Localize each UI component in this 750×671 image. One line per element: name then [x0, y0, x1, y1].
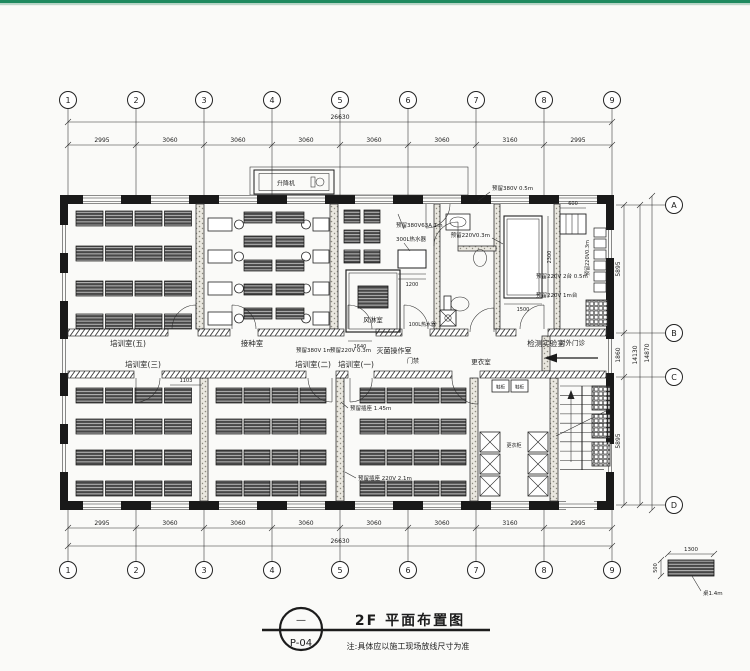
- drawing-title: 2F 平面布置图: [355, 612, 465, 629]
- dim-seg-bottom: 3060: [434, 520, 449, 527]
- desk: [387, 388, 412, 403]
- work-table: [276, 212, 304, 223]
- window-bottom: [559, 502, 597, 510]
- corridor-wall-top: [198, 329, 230, 336]
- electrical-panel: [586, 300, 608, 326]
- dim-seg-bottom: 3060: [230, 520, 245, 527]
- desk: [360, 419, 385, 434]
- label-room-r3: 培训室(三): [125, 359, 161, 369]
- desk: [360, 388, 385, 403]
- air-shower-unit: [358, 286, 388, 308]
- desk: [165, 246, 192, 261]
- window-top: [423, 196, 461, 204]
- electrical-box: [594, 250, 606, 259]
- window-top: [83, 196, 121, 204]
- grid-label-bottom: 5: [337, 566, 342, 575]
- rack: [364, 250, 380, 263]
- desk: [216, 481, 242, 496]
- electrical-box: [594, 283, 606, 292]
- label-room-r1: 培训室(一): [338, 359, 374, 369]
- desk: [76, 419, 103, 434]
- desk: [76, 211, 103, 226]
- bench: [313, 312, 329, 325]
- window-bottom: [355, 502, 393, 510]
- dim-seg-bottom: 3060: [162, 520, 177, 527]
- desk: [106, 314, 133, 329]
- corridor-wall-top: [496, 329, 516, 336]
- work-table: [244, 260, 272, 271]
- note-220v-1m: 预留220V 1m台: [536, 291, 578, 299]
- desk: [165, 211, 192, 226]
- window-bottom: [151, 502, 189, 510]
- grid-label-row: C: [671, 373, 677, 382]
- desk: [135, 281, 162, 296]
- window-top: [559, 196, 597, 204]
- label-air-shower: 风淋室: [363, 315, 383, 324]
- dim-seg-top: 3060: [230, 137, 245, 144]
- desk: [165, 450, 192, 465]
- stool: [235, 220, 244, 229]
- dim-seg-bottom: 2995: [570, 520, 585, 527]
- grid-label-row: D: [671, 501, 677, 510]
- grid-label-top: 2: [133, 96, 138, 105]
- exit-west: [60, 339, 68, 373]
- desk: [135, 388, 162, 403]
- stool: [235, 252, 244, 261]
- desk: [441, 388, 466, 403]
- note-380v-63a: 预留380V63A 1m: [396, 221, 443, 229]
- grid-label-top: 7: [473, 96, 478, 105]
- note-220v-03c: 预留220V 0.3m: [330, 346, 371, 354]
- rack: [344, 210, 360, 223]
- desk: [414, 388, 439, 403]
- stool: [235, 314, 244, 323]
- desk: [414, 450, 439, 465]
- label-room-locker: 更衣室: [471, 357, 491, 366]
- legend-label: 桌1.4m: [703, 589, 723, 597]
- note-220v-03a: 预留220V0.3m: [451, 231, 490, 239]
- electrical-panel: [592, 414, 610, 438]
- label-room-r2: 培训室(二): [295, 359, 331, 369]
- note-220v-03b: 预留220V0.3m: [584, 240, 591, 276]
- desk: [76, 314, 103, 329]
- work-table: [244, 308, 272, 319]
- work-table: [276, 236, 304, 247]
- label-room-clinic: 对外门诊: [559, 338, 586, 347]
- desk: [300, 481, 326, 496]
- note-socket-21: 预留插座 220V 2.1m: [358, 474, 412, 482]
- corridor-wall-top: [430, 329, 468, 336]
- legend-height: 500: [653, 563, 659, 573]
- desk: [135, 481, 162, 496]
- corridor-wall-bottom: [480, 371, 606, 378]
- label-shoe-cabinet-1: 鞋柜: [496, 384, 505, 391]
- sheet-revision: —: [296, 615, 306, 626]
- label-room-sterilization: 灭菌操作室: [377, 346, 412, 355]
- desk: [165, 281, 192, 296]
- work-table: [244, 284, 272, 295]
- dim-total-row-outer: 14870: [644, 343, 651, 362]
- corridor-wall-top: [258, 329, 344, 336]
- dim-1103: 1103: [180, 378, 193, 384]
- label-shoe-cabinet-2: 鞋柜: [515, 384, 524, 391]
- work-table: [276, 260, 304, 271]
- work-table: [398, 250, 426, 268]
- electrical-panel: [592, 386, 610, 410]
- desk: [165, 388, 192, 403]
- dim-seg-top: 3060: [162, 137, 177, 144]
- dim-seg-top: 3160: [502, 137, 517, 144]
- desk: [414, 419, 439, 434]
- desk: [106, 388, 133, 403]
- desk: [387, 450, 412, 465]
- dim-total-bottom: 26630: [330, 538, 349, 545]
- corridor-wall-bottom: [162, 371, 306, 378]
- desk: [387, 419, 412, 434]
- desk: [272, 481, 298, 496]
- dim-1500: 1500: [517, 307, 530, 313]
- grid-label-bottom: 6: [405, 566, 410, 575]
- desk: [165, 419, 192, 434]
- note-380v-1m: 预留380V 1m: [296, 346, 332, 354]
- desk: [76, 388, 103, 403]
- window-left: [60, 273, 68, 301]
- grid-label-bottom: 4: [269, 566, 274, 575]
- desk: [216, 388, 242, 403]
- label-access-control: 门禁: [407, 357, 419, 365]
- grid-label-bottom: 2: [133, 566, 138, 575]
- desk: [244, 481, 270, 496]
- dim-1200: 1200: [406, 282, 419, 288]
- note-380v-05: 预留380V 0.5m: [492, 184, 533, 192]
- floor-plan: 1122334455667788992663029953060306030603…: [0, 0, 750, 671]
- desk: [414, 481, 439, 496]
- drawing-note: 注:具体应以施工现场放线尺寸为准: [347, 641, 470, 651]
- rack: [364, 210, 380, 223]
- grid-label-row: B: [671, 329, 677, 338]
- lab-bench: [504, 216, 542, 298]
- wall-top: [60, 195, 614, 204]
- dim-total-top: 26630: [330, 114, 349, 121]
- grid-label-bottom: 7: [473, 566, 478, 575]
- bench: [208, 218, 232, 231]
- desk: [76, 281, 103, 296]
- window-bottom: [287, 502, 325, 510]
- desk: [106, 450, 133, 465]
- work-table: [276, 308, 304, 319]
- grid-label-bottom: 8: [541, 566, 546, 575]
- desk: [106, 281, 133, 296]
- window-left: [60, 396, 68, 424]
- note-socket-145: 预留插座 1.45m: [350, 404, 391, 412]
- window-right: [606, 230, 614, 258]
- page-top-strip: [0, 0, 750, 3]
- corridor-wall-bottom: [374, 371, 452, 378]
- corridor-wall-bottom: [336, 371, 348, 378]
- window-bottom: [491, 502, 529, 510]
- desk: [216, 419, 242, 434]
- desk: [135, 246, 162, 261]
- desk: [135, 314, 162, 329]
- grid-label-top: 5: [337, 96, 342, 105]
- desk: [76, 450, 103, 465]
- grid-label-top: 6: [405, 96, 410, 105]
- bench: [313, 282, 329, 295]
- sheet-number: P-04: [290, 638, 312, 649]
- desk: [76, 481, 103, 496]
- dim-seg-top: 2995: [94, 137, 109, 144]
- window-top: [355, 196, 393, 204]
- window-bottom: [423, 502, 461, 510]
- bench: [208, 282, 232, 295]
- desk: [360, 450, 385, 465]
- note-heater-300l: 300L热水器: [396, 235, 427, 243]
- bench: [313, 250, 329, 263]
- corridor-wall-bottom: [68, 371, 134, 378]
- label-room-r5: 培训室(五): [110, 338, 146, 348]
- grid-label-top: 4: [269, 96, 274, 105]
- electrical-box: [594, 239, 606, 248]
- label-wardrobe: 更衣柜: [506, 442, 521, 449]
- dim-total-row-inner: 14130: [632, 345, 639, 364]
- desk: [135, 450, 162, 465]
- legend-width: 1300: [684, 547, 698, 553]
- dim-seg-bottom: 2995: [94, 520, 109, 527]
- desk: [216, 450, 242, 465]
- dim-seg-row: 5895: [615, 433, 622, 448]
- window-bottom: [83, 502, 121, 510]
- work-table: [276, 284, 304, 295]
- window-top: [151, 196, 189, 204]
- window-top: [491, 196, 529, 204]
- grid-label-top: 1: [65, 96, 70, 105]
- dim-seg-bottom: 3060: [298, 520, 313, 527]
- corridor-wall-top: [68, 329, 168, 336]
- sterilizer-cabinet: [560, 214, 586, 234]
- grid-label-row: A: [671, 201, 677, 210]
- grid-label-bottom: 1: [65, 566, 70, 575]
- desk: [441, 419, 466, 434]
- window-top: [219, 196, 257, 204]
- grid-label-top: 3: [201, 96, 206, 105]
- desk: [165, 314, 192, 329]
- rack: [344, 250, 360, 263]
- work-table: [244, 236, 272, 247]
- desk: [272, 388, 298, 403]
- dim-seg-row: 5895: [615, 261, 622, 276]
- wall-bottom: [60, 501, 614, 510]
- desk: [360, 481, 385, 496]
- dim-seg-top: 2995: [570, 137, 585, 144]
- desk: [76, 246, 103, 261]
- stool: [235, 284, 244, 293]
- desk: [244, 419, 270, 434]
- legend-desk: [668, 560, 714, 576]
- corridor-wall-top: [548, 329, 606, 336]
- desk: [272, 419, 298, 434]
- dim-2300: 2300: [547, 251, 553, 264]
- work-table: [244, 212, 272, 223]
- desk: [300, 419, 326, 434]
- desk: [244, 450, 270, 465]
- rack: [344, 230, 360, 243]
- electrical-box: [594, 261, 606, 270]
- desk: [441, 481, 466, 496]
- dim-seg-row: 1860: [615, 347, 622, 362]
- desk: [244, 388, 270, 403]
- window-top: [287, 196, 325, 204]
- desk: [165, 481, 192, 496]
- desk: [106, 481, 133, 496]
- desk: [441, 450, 466, 465]
- stool: [302, 252, 311, 261]
- drawing-sheet: 1122334455667788992663029953060306030603…: [0, 0, 750, 671]
- label-room-inoculation: 接种室: [241, 338, 264, 348]
- dim-seg-top: 3060: [434, 137, 449, 144]
- electrical-panel: [592, 442, 610, 466]
- dim-seg-top: 3060: [298, 137, 313, 144]
- title-block: — P-04 2F 平面布置图 注:具体应以施工现场放线尺寸为准: [262, 608, 490, 651]
- window-left: [60, 444, 68, 472]
- desk: [300, 450, 326, 465]
- dim-600: 600: [568, 201, 578, 207]
- desk: [106, 246, 133, 261]
- grid-label-bottom: 3: [201, 566, 206, 575]
- exit-east: [606, 339, 614, 373]
- window-left: [60, 225, 68, 253]
- dim-seg-bottom: 3160: [502, 520, 517, 527]
- label-elevator: 升降机: [277, 180, 295, 188]
- window-bottom: [219, 502, 257, 510]
- bench: [313, 218, 329, 231]
- grid-label-top: 9: [609, 96, 614, 105]
- desk: [135, 211, 162, 226]
- page-top-strip-fade: [0, 3, 750, 5]
- electrical-box: [594, 272, 606, 281]
- grid-label-top: 8: [541, 96, 546, 105]
- desk: [387, 481, 412, 496]
- dim-seg-bottom: 3060: [366, 520, 381, 527]
- note-220v-2t: 预留220V 2台 0.5m: [536, 272, 588, 280]
- rack: [364, 230, 380, 243]
- desk: [272, 450, 298, 465]
- grid-label-bottom: 9: [609, 566, 614, 575]
- desk: [135, 419, 162, 434]
- bench: [208, 250, 232, 263]
- desk: [300, 388, 326, 403]
- dim-seg-top: 3060: [366, 137, 381, 144]
- desk: [106, 211, 133, 226]
- desk: [106, 419, 133, 434]
- electrical-box: [594, 228, 606, 237]
- bench: [208, 312, 232, 325]
- note-heater-100l: 100L热水器: [409, 321, 436, 328]
